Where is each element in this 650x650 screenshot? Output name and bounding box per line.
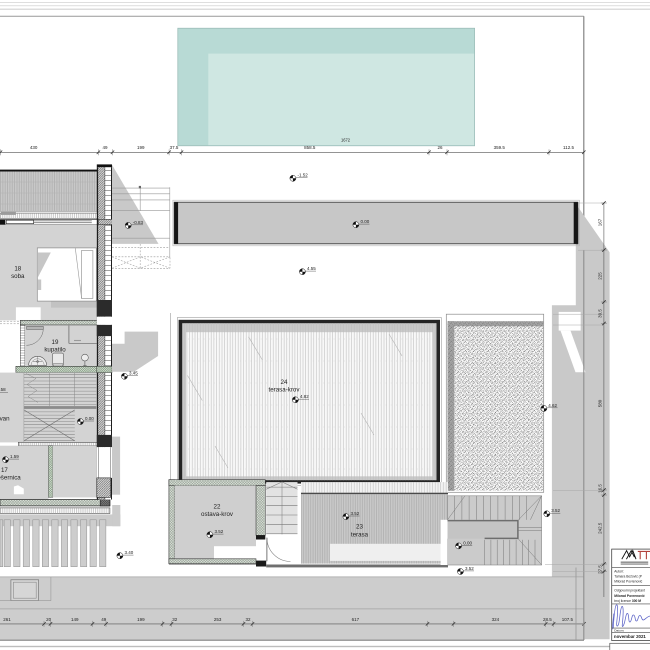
svg-text:2.58: 2.58 <box>0 387 6 392</box>
svg-text:terasa-krov: terasa-krov <box>269 387 301 394</box>
svg-text:26: 26 <box>437 145 443 150</box>
svg-text:4.55: 4.55 <box>307 266 316 271</box>
svg-text:107.5: 107.5 <box>562 617 574 622</box>
svg-text:39.5: 39.5 <box>598 309 603 318</box>
svg-text:225: 225 <box>598 272 603 280</box>
svg-text:-1.52: -1.52 <box>298 173 309 178</box>
svg-text:261: 261 <box>3 617 11 622</box>
svg-text:3.52: 3.52 <box>465 566 474 571</box>
svg-text:580: 580 <box>598 399 603 407</box>
svg-text:3.52: 3.52 <box>215 529 224 534</box>
svg-text:18: 18 <box>14 266 21 273</box>
svg-text:Milorad Povrenović: Milorad Povrenović <box>614 594 645 598</box>
svg-text:617: 617 <box>352 617 360 622</box>
svg-text:27.5: 27.5 <box>598 565 603 574</box>
svg-text:20: 20 <box>46 617 52 622</box>
svg-text:Tamara Božović (P: Tamara Božović (P <box>614 575 642 579</box>
svg-text:vešernica: vešernica <box>0 475 21 482</box>
svg-text:0.00: 0.00 <box>361 219 370 224</box>
svg-text:3.40: 3.40 <box>125 550 134 555</box>
svg-text:novembar 2021: novembar 2021 <box>614 634 647 639</box>
svg-text:broj licence 300 M: broj licence 300 M <box>614 599 641 603</box>
svg-text:28.5: 28.5 <box>543 617 552 622</box>
svg-text:199: 199 <box>137 617 145 622</box>
svg-text:32: 32 <box>172 617 178 622</box>
svg-text:4.62: 4.62 <box>548 403 557 408</box>
svg-text:167: 167 <box>598 218 603 226</box>
svg-text:0.00: 0.00 <box>85 416 94 421</box>
svg-text:Datum:: Datum: <box>614 629 624 633</box>
svg-text:3.45: 3.45 <box>129 371 138 376</box>
svg-text:Odgovorni projektant: Odgovorni projektant <box>614 589 645 593</box>
svg-text:23: 23 <box>356 524 363 531</box>
svg-text:24: 24 <box>281 379 288 386</box>
svg-text:49: 49 <box>101 617 107 622</box>
svg-text:tavan: tavan <box>0 416 10 423</box>
svg-text:0.00: 0.00 <box>463 540 472 545</box>
svg-text:242.5: 242.5 <box>598 522 603 534</box>
svg-text:17: 17 <box>1 467 8 474</box>
svg-text:ostava-krov: ostava-krov <box>201 511 234 518</box>
svg-text:soba: soba <box>11 273 25 280</box>
svg-text:324: 324 <box>492 617 500 622</box>
svg-text:112.5: 112.5 <box>563 145 574 150</box>
svg-text:3.52: 3.52 <box>551 508 560 513</box>
svg-text:1672: 1672 <box>341 137 351 142</box>
svg-text:49: 49 <box>102 145 108 150</box>
svg-text:430: 430 <box>30 145 38 150</box>
svg-text:199: 199 <box>137 145 145 150</box>
svg-text:16.5: 16.5 <box>598 484 603 493</box>
svg-text:Milorad Povrenović: Milorad Povrenović <box>614 580 642 584</box>
svg-text:19: 19 <box>52 339 59 346</box>
svg-text:32: 32 <box>245 617 251 622</box>
svg-text:-0.83: -0.83 <box>133 220 144 225</box>
svg-text:1.59: 1.59 <box>10 454 19 459</box>
svg-text:359.5: 359.5 <box>494 145 506 150</box>
svg-text:22: 22 <box>214 503 221 510</box>
svg-text:253: 253 <box>214 617 222 622</box>
svg-text:kupatilo: kupatilo <box>44 347 66 354</box>
svg-text:3.52: 3.52 <box>351 511 360 516</box>
svg-text:terasa: terasa <box>351 531 369 538</box>
svg-text:149: 149 <box>71 617 79 622</box>
svg-text:Autori:: Autori: <box>614 569 624 573</box>
svg-text:37.5: 37.5 <box>170 145 179 150</box>
svg-text:4.82: 4.82 <box>300 394 309 399</box>
svg-text:858.5: 858.5 <box>304 145 316 150</box>
